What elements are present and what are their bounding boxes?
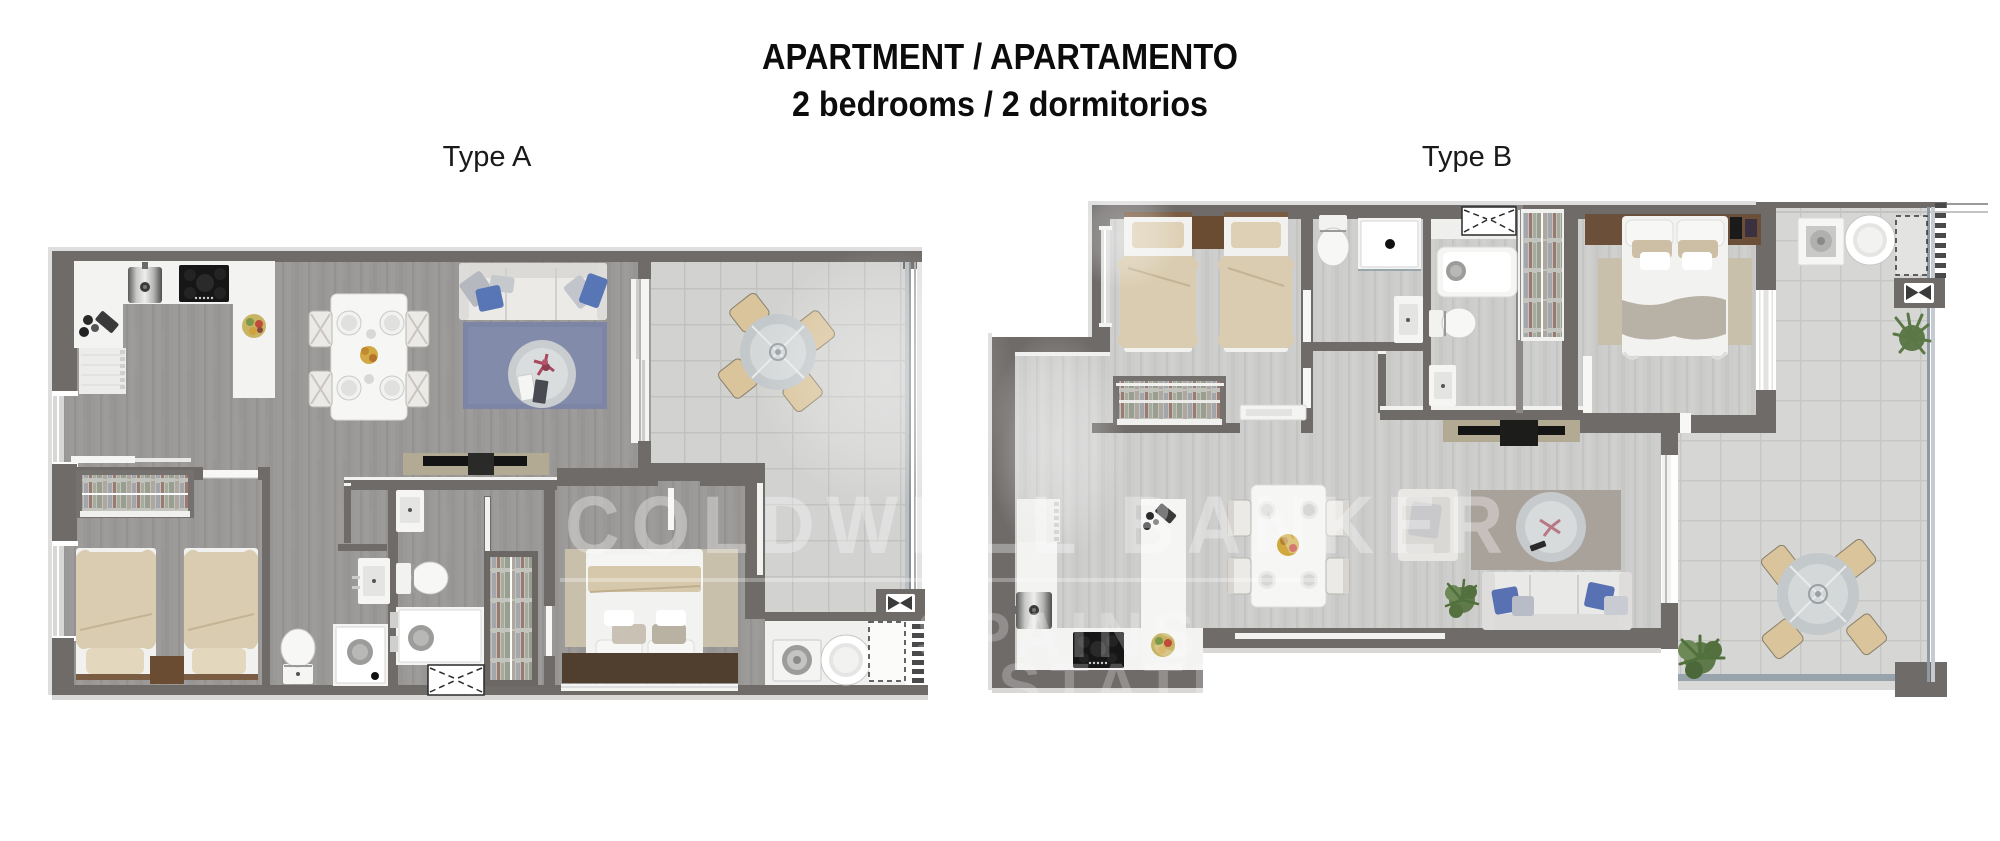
svg-text:Type B: Type B [1422,141,1512,173]
svg-text:APARTMENT / APARTAMENTO: APARTMENT / APARTAMENTO [762,36,1238,77]
svg-text:ESTATE: ESTATE [947,650,1244,722]
svg-text:Type A: Type A [443,141,532,173]
svg-text:2 bedrooms / 2 dormitorios: 2 bedrooms / 2 dormitorios [792,85,1208,124]
svg-text:COLDWELL BANKER: COLDWELL BANKER [565,480,1515,571]
